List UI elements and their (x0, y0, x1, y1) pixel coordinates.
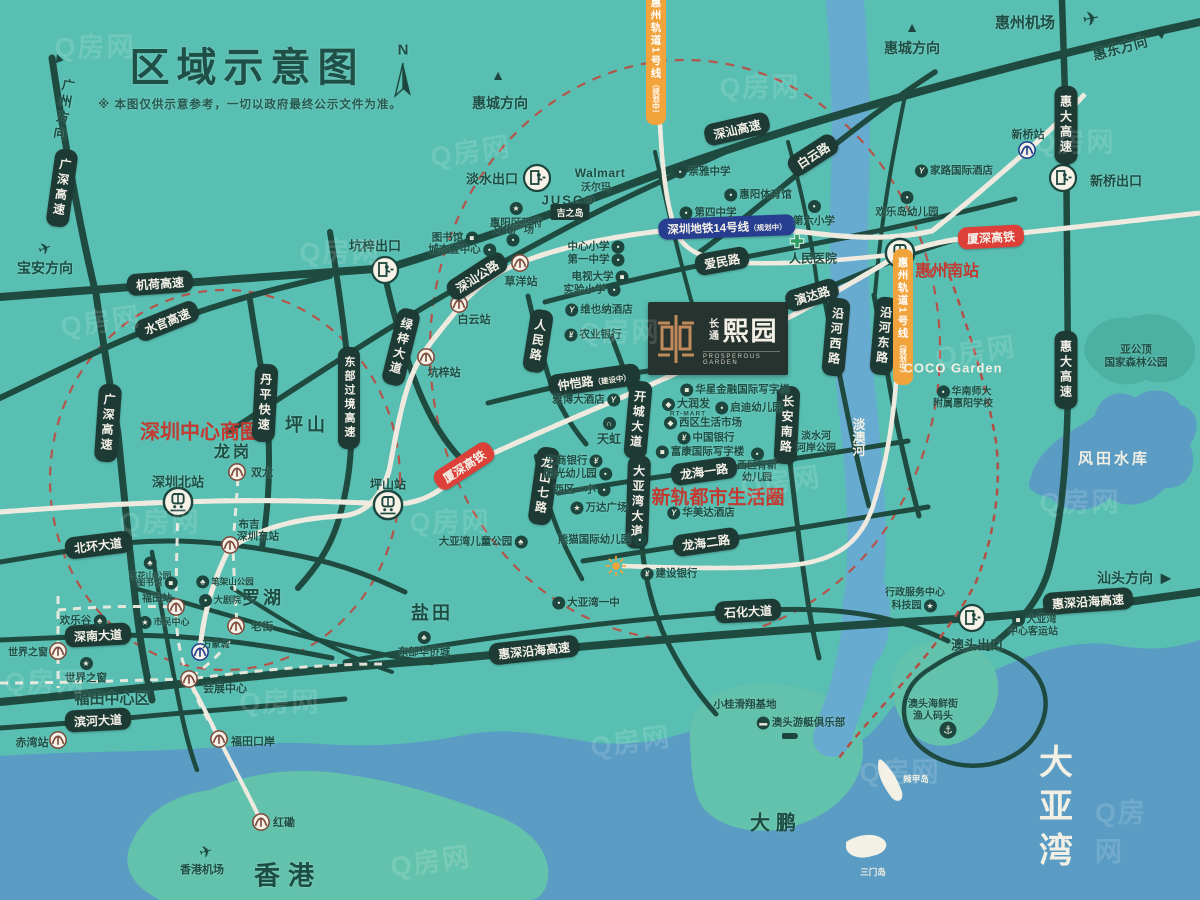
project-emblem-icon (656, 313, 696, 365)
project-logo: 长通 熙园 PROSPEROUS GARDEN (648, 302, 788, 375)
page-title: 区域示意图 (130, 35, 365, 93)
region-map: 区域示意图 ※ 本图仅供示意参考，一切以政府最终公示文件为准。 长通 熙园 PR… (0, 0, 1200, 900)
map-disclaimer-note: ※ 本图仅供示意参考，一切以政府最终公示文件为准。 (98, 96, 402, 112)
map-canvas (0, 0, 1200, 900)
logo-name-en: PROSPEROUS GARDEN (703, 351, 780, 366)
logo-name-small: 长通 (704, 318, 719, 342)
logo-name-large: 熙园 (722, 311, 778, 348)
